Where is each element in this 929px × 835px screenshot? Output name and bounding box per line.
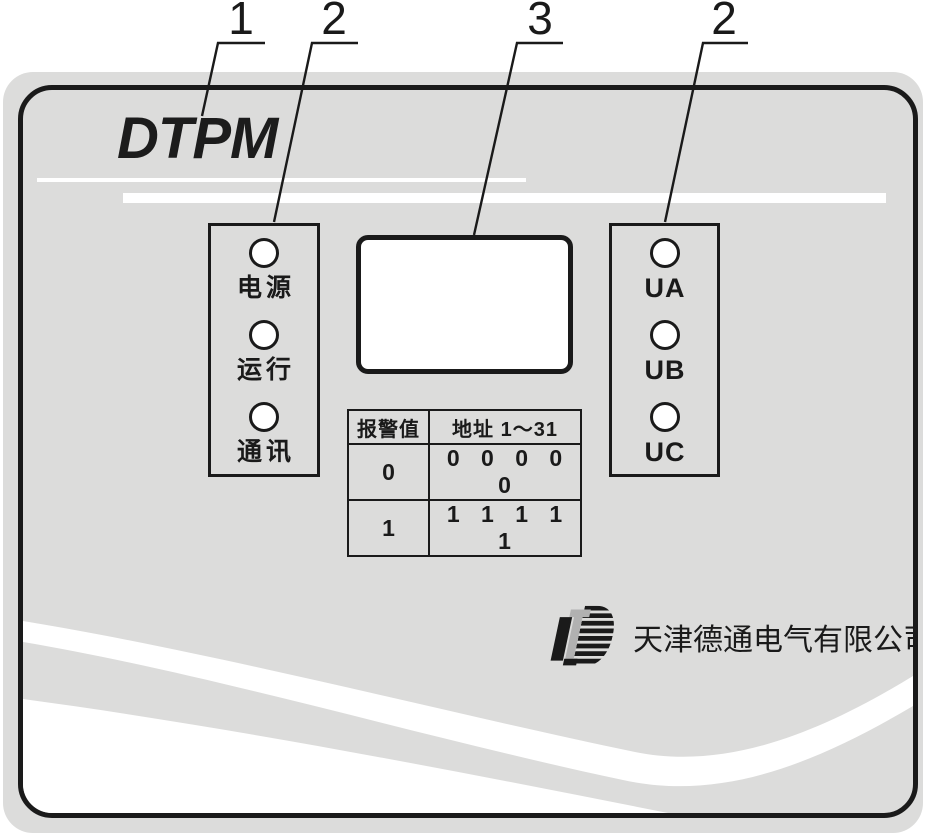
table-row: 0 0 0 0 0 0 bbox=[348, 444, 581, 500]
alarm-value-cell: 0 bbox=[348, 444, 429, 500]
comm-led bbox=[249, 402, 279, 432]
ua-led bbox=[650, 238, 680, 268]
alarm-address-table: 报警值 地址 1～31 0 0 0 0 0 0 1 1 1 1 1 1 bbox=[347, 409, 582, 557]
comm-led-label: 通讯 bbox=[237, 439, 295, 465]
callout-number-3: 3 bbox=[527, 0, 553, 41]
uc-led-label: UC bbox=[645, 439, 686, 465]
run-led-label: 运行 bbox=[237, 357, 295, 383]
panel-diagram: 1 2 3 2 DTPM 电源 运行 bbox=[0, 0, 929, 835]
power-led-label: 电源 bbox=[237, 275, 295, 301]
company-brand: 天津德通电气有限公司 bbox=[549, 604, 918, 670]
divider-line-thin bbox=[37, 178, 526, 182]
ub-led-label: UB bbox=[645, 357, 686, 383]
callout-number-2-right: 2 bbox=[711, 0, 737, 41]
run-led bbox=[249, 320, 279, 350]
power-led bbox=[249, 238, 279, 268]
phase-led-group: UA UB UC bbox=[609, 223, 720, 477]
address-bits-cell: 0 0 0 0 0 bbox=[429, 444, 581, 500]
alarm-value-cell: 1 bbox=[348, 500, 429, 556]
alarm-value-header: 报警值 bbox=[348, 410, 429, 444]
status-led-group: 电源 运行 通讯 bbox=[208, 223, 320, 477]
callout-number-1: 1 bbox=[228, 0, 254, 41]
address-range-header: 地址 1～31 bbox=[429, 410, 581, 444]
address-bits-cell: 1 1 1 1 1 bbox=[429, 500, 581, 556]
detong-logo-icon bbox=[549, 604, 621, 670]
lcd-display bbox=[356, 235, 573, 374]
ub-led bbox=[650, 320, 680, 350]
panel-wordmark: DTPM bbox=[117, 110, 277, 168]
uc-led bbox=[650, 402, 680, 432]
callout-number-2-left: 2 bbox=[321, 0, 347, 41]
divider-line-thick bbox=[123, 193, 886, 203]
table-row: 1 1 1 1 1 1 bbox=[348, 500, 581, 556]
device-front-panel: DTPM 电源 运行 通讯 报警值 地址 1～31 bbox=[18, 85, 918, 818]
ua-led-label: UA bbox=[645, 275, 686, 301]
company-name: 天津德通电气有限公司 bbox=[633, 623, 918, 659]
